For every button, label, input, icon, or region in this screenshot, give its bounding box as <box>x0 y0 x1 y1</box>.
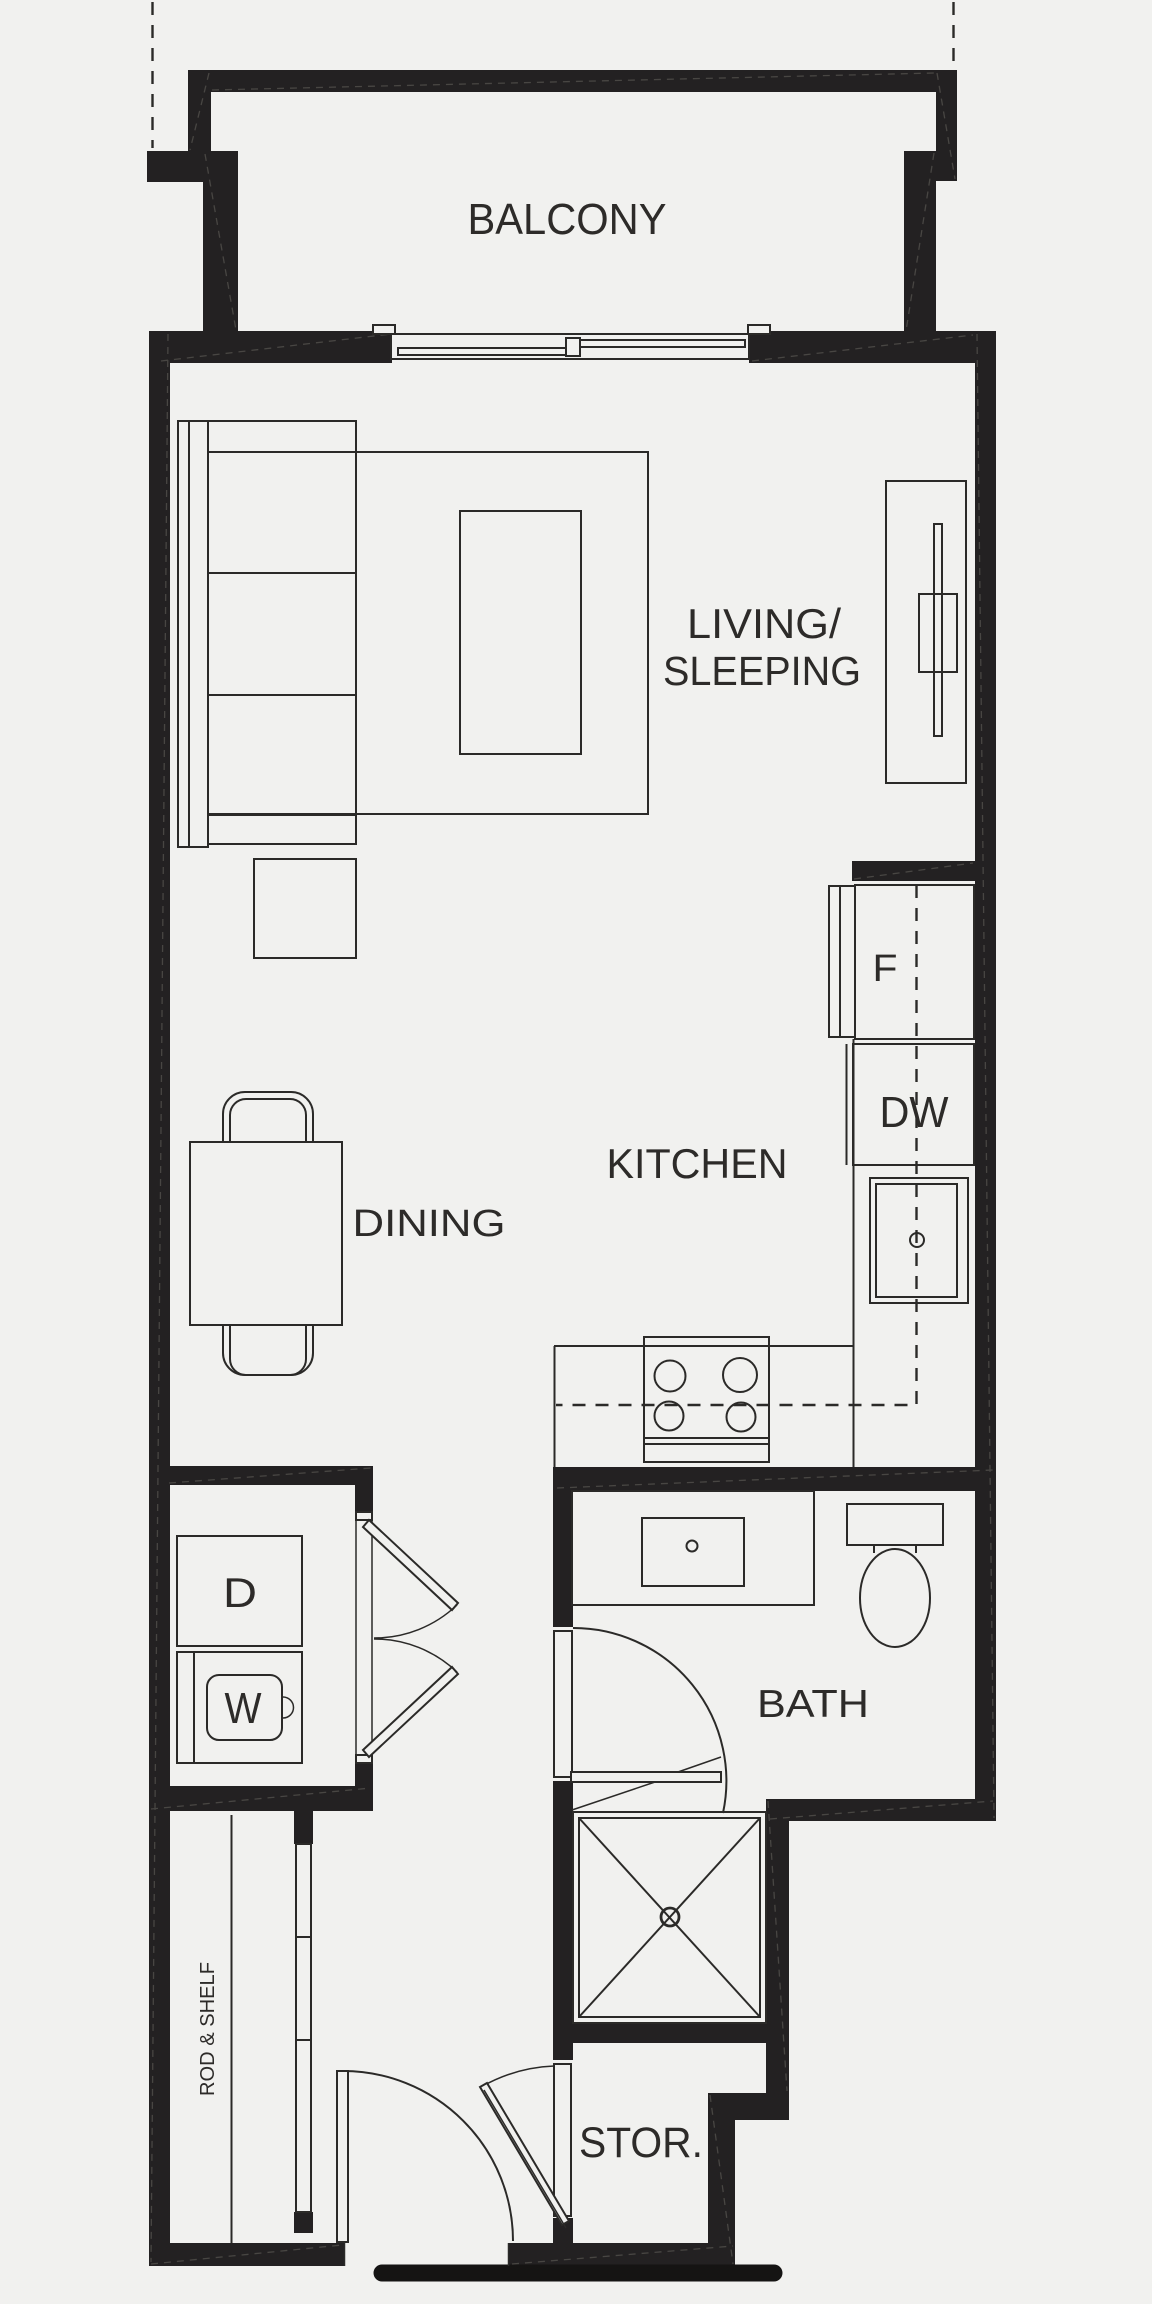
svg-text:D: D <box>223 1569 257 1616</box>
svg-text:KITCHEN: KITCHEN <box>607 1140 788 1187</box>
svg-text:BATH: BATH <box>757 1683 869 1726</box>
svg-text:F: F <box>873 948 898 990</box>
svg-text:LIVING/: LIVING/ <box>687 600 841 647</box>
svg-text:SLEEPING: SLEEPING <box>663 648 861 694</box>
svg-text:BALCONY: BALCONY <box>468 195 667 244</box>
svg-text:ROD & SHELF: ROD & SHELF <box>197 1962 219 2096</box>
svg-text:W: W <box>225 1684 262 1733</box>
svg-text:DW: DW <box>880 1088 949 1137</box>
svg-text:DINING: DINING <box>353 1203 506 1245</box>
svg-text:STOR.: STOR. <box>579 2119 703 2167</box>
